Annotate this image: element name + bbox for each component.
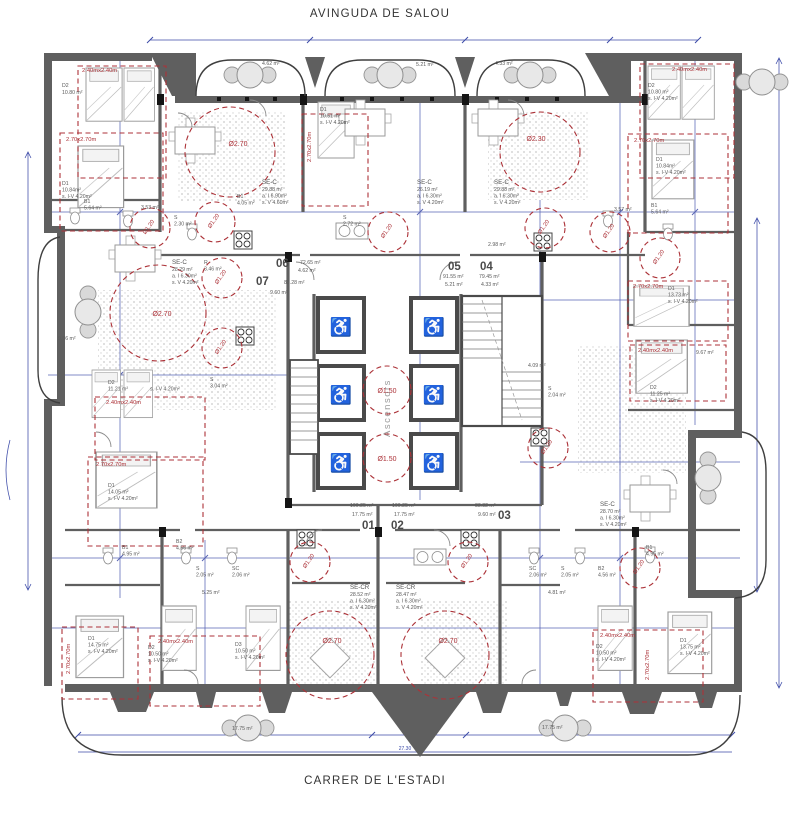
svg-text:D1: D1 — [680, 638, 687, 644]
svg-text:4.62 m²: 4.62 m² — [262, 61, 280, 67]
svg-text:s. V 4.20m²: s. V 4.20m² — [494, 200, 521, 206]
svg-text:28.52 m²: 28.52 m² — [350, 592, 371, 598]
svg-text:s. I-V 4.20m²: s. I-V 4.20m² — [680, 651, 710, 657]
svg-text:s. I-V 4.20m²: s. I-V 4.20m² — [108, 496, 138, 502]
svg-text:a. I 6.30m²: a. I 6.30m² — [494, 194, 519, 200]
svg-text:4.56 m²: 4.56 m² — [176, 546, 194, 552]
svg-text:4.05 m²: 4.05 m² — [237, 201, 255, 207]
staircase-west — [290, 360, 318, 454]
svg-text:SE-C: SE-C — [172, 259, 187, 266]
svg-text:S: S — [174, 215, 178, 221]
svg-text:s. V 4.20m²: s. V 4.20m² — [417, 200, 444, 206]
svg-text:D2: D2 — [648, 83, 655, 89]
clearance-label: 2.70x2.70m — [634, 138, 664, 144]
svg-text:28.47 m²: 28.47 m² — [396, 592, 417, 598]
unit-terrace-05: 5.21 m² — [445, 282, 463, 288]
svg-text:29.88 m²: 29.88 m² — [262, 187, 283, 193]
svg-text:B1: B1 — [84, 199, 90, 205]
svg-text:3.57 m²: 3.57 m² — [614, 207, 632, 213]
svg-text:10.84m²: 10.84m² — [62, 188, 81, 194]
svg-text:B2: B2 — [176, 539, 182, 545]
svg-text:5.21 m²: 5.21 m² — [416, 62, 434, 68]
svg-text:11.25 m²: 11.25 m² — [650, 392, 670, 398]
street-name-bottom: CARRER DE L'ESTADI — [304, 775, 446, 787]
svg-text:SE-C: SE-C — [262, 179, 277, 186]
unit-area-01: 100.25 m² — [350, 503, 374, 509]
svg-text:2.30 m²: 2.30 m² — [174, 222, 192, 228]
clearance-label: 2.70x2.70m — [66, 137, 96, 143]
svg-text:s. I-V 4.20m²: s. I-V 4.20m² — [650, 398, 680, 404]
wheelchair-icon: ♿ — [330, 384, 352, 405]
svg-text:D1: D1 — [320, 107, 327, 113]
unit-number-03: 03 — [498, 510, 511, 522]
clearance-label: Ø1.20 — [207, 213, 221, 229]
wheelchair-icon: ♿ — [423, 384, 445, 405]
unit-terrace-02: 17.75 m² — [394, 512, 415, 518]
clearance-label: Ø1.20 — [460, 553, 474, 569]
balcony-table — [736, 69, 788, 95]
svg-text:s. I-V 4.20m²: s. I-V 4.20m² — [320, 120, 350, 126]
svg-text:9.67 m²: 9.67 m² — [696, 350, 714, 356]
clearance-label: Ø1.20 — [302, 553, 316, 569]
svg-text:28.70 m²: 28.70 m² — [600, 509, 621, 515]
unit-area-07: 83.28 m² — [284, 280, 305, 286]
svg-text:D3: D3 — [235, 642, 242, 648]
svg-text:B1: B1 — [646, 545, 652, 551]
svg-text:D1: D1 — [88, 636, 95, 642]
svg-text:s. I-V 4.20m²: s. I-V 4.20m² — [648, 96, 678, 102]
svg-text:14.75 m²: 14.75 m² — [88, 643, 109, 649]
svg-text:S: S — [548, 386, 552, 392]
wheelchair-icon: ♿ — [330, 316, 352, 337]
svg-text:S: S — [210, 377, 214, 383]
svg-text:5.25 m²: 5.25 m² — [202, 590, 220, 596]
svg-text:SE-C: SE-C — [417, 179, 432, 186]
clearance-label: 2.70x2.70m — [633, 284, 663, 290]
unit-area-06: 72.65 m² — [300, 260, 321, 266]
svg-text:s. I-V 4.20m²: s. I-V 4.20m² — [668, 299, 698, 305]
unit-terrace-07: 9.60 m² — [270, 290, 288, 296]
svg-text:26.19 m²: 26.19 m² — [417, 187, 438, 193]
living-room-label: SE-C 26.19 m² a. I 6.30m² s. V 4.20m² — [417, 179, 444, 206]
svg-text:2.05 m²: 2.05 m² — [196, 573, 214, 579]
svg-text:5.64 m²: 5.64 m² — [84, 206, 102, 212]
svg-text:D1: D1 — [668, 286, 675, 292]
clearance-label: 2.70x2.70m — [645, 650, 651, 680]
clearance-label: 2.70x2.70m — [66, 644, 72, 674]
clearance-label: Ø1.20 — [602, 223, 616, 239]
svg-text:SC: SC — [232, 566, 239, 572]
svg-text:13.75 m²: 13.75 m² — [680, 645, 701, 651]
svg-text:4.81 m²: 4.81 m² — [548, 590, 566, 596]
svg-text:SE-CR: SE-CR — [350, 584, 370, 591]
unit-number-01: 01 — [362, 520, 375, 532]
svg-text:B1: B1 — [651, 203, 657, 209]
clearance-label: Ø1.20 — [380, 223, 394, 239]
svg-text:D2: D2 — [148, 645, 155, 651]
svg-text:4.95 m²: 4.95 m² — [646, 552, 664, 558]
svg-text:2.05 m²: 2.05 m² — [561, 573, 579, 579]
svg-text:4.09 m²: 4.09 m² — [528, 363, 546, 369]
clearance-label: 2.70x2.70m — [307, 132, 313, 162]
svg-text:s. I-V 4.20m²: s. I-V 4.20m² — [88, 649, 118, 655]
clearance-label: 2.40mx2.40m — [672, 67, 707, 73]
wheelchair-icon: ♿ — [330, 452, 352, 473]
unit-number-04: 04 — [480, 261, 493, 273]
clearance-label: Ø1.20 — [142, 219, 156, 235]
svg-text:2.72 m²: 2.72 m² — [343, 222, 361, 228]
svg-text:D1: D1 — [108, 483, 115, 489]
svg-text:D1: D1 — [62, 181, 69, 187]
svg-text:10.50 m²: 10.50 m² — [235, 649, 256, 655]
svg-text:SC: SC — [529, 566, 536, 572]
entrance-arrow-bottom — [372, 692, 468, 757]
svg-text:S: S — [343, 215, 347, 221]
svg-text:S: S — [561, 566, 565, 572]
unit-terrace-04: 4.33 m² — [481, 282, 499, 288]
svg-text:B1: B1 — [237, 194, 243, 200]
svg-text:D2: D2 — [650, 385, 657, 391]
unit-area-05: 91.55 m² — [443, 274, 464, 280]
svg-text:s. I-V 4.20m²: s. I-V 4.20m² — [235, 655, 265, 661]
staircase-east — [462, 296, 542, 426]
svg-text:a. I 6.30m²: a. I 6.30m² — [600, 516, 625, 522]
svg-text:2.04 m²: 2.04 m² — [548, 393, 566, 399]
svg-text:s. I-V 4.20m²: s. I-V 4.20m² — [150, 387, 180, 393]
clearance-label: 2.40mx2.40m — [600, 633, 635, 639]
svg-text:s. I-V 4.20m²: s. I-V 4.20m² — [656, 170, 686, 176]
svg-text:s. V 4.60m²: s. V 4.60m² — [262, 200, 289, 206]
balcony-table — [75, 286, 101, 338]
dim-total-width: 27.30 — [399, 746, 412, 752]
svg-text:B1: B1 — [122, 545, 128, 551]
unit-number-07: 07 — [256, 276, 269, 288]
balcony-table — [695, 452, 721, 504]
svg-text:SE-CR: SE-CR — [396, 584, 416, 591]
clearance-label: Ø2.70 — [322, 638, 341, 645]
svg-text:B2: B2 — [598, 566, 604, 572]
svg-text:11.21 m²: 11.21 m² — [108, 387, 128, 393]
clearance-label: Ø2.70 — [438, 638, 457, 645]
clearance-label: Ø1.50 — [377, 456, 396, 463]
living-room-label: SE-C 28.29 m² a. I 6.30m² s. V 4.20m² — [172, 259, 199, 286]
left-edge-arc — [6, 440, 10, 500]
floor-plan-drawing: 1.50 27.30 — [0, 0, 805, 814]
svg-text:13.73 m²: 13.73 m² — [668, 293, 689, 299]
clearance-label: 2.40mx2.40m — [638, 348, 673, 354]
svg-text:10.51 m²: 10.51 m² — [320, 114, 341, 120]
svg-text:a. I 6.30m²: a. I 6.30m² — [172, 274, 197, 280]
svg-text:D1: D1 — [656, 157, 663, 163]
svg-text:s. V 4.20m²: s. V 4.20m² — [350, 605, 377, 611]
svg-text:D2: D2 — [62, 83, 69, 89]
entrance-arrow-top-left — [305, 57, 325, 88]
svg-text:s. I-V 4.20m²: s. I-V 4.20m² — [596, 657, 626, 663]
clearance-label: 2.40mx2.40m — [106, 400, 141, 406]
unit-terrace-01: 17.75 m² — [352, 512, 373, 518]
clearance-label: 2.40mx2.40m — [82, 68, 117, 74]
svg-text:2.98 m²: 2.98 m² — [488, 242, 506, 248]
unit-area-03: 83.32 m² — [475, 503, 496, 509]
svg-text:14.05 m²: 14.05 m² — [108, 490, 129, 496]
entrance-arrow-top-right — [455, 57, 475, 88]
svg-text:17.75 m²: 17.75 m² — [542, 725, 563, 731]
clearance-label: Ø1.20 — [652, 249, 666, 265]
svg-text:2.06 m²: 2.06 m² — [232, 573, 250, 579]
svg-text:4.33 m²: 4.33 m² — [495, 61, 513, 67]
svg-text:10.84m²: 10.84m² — [656, 164, 675, 170]
svg-text:D2: D2 — [108, 380, 115, 386]
svg-text:3.46 m²: 3.46 m² — [204, 267, 222, 273]
svg-text:3.04 m²: 3.04 m² — [210, 384, 228, 390]
unit-area-02: 100.25 m² — [392, 503, 416, 509]
svg-text:29.88 m²: 29.88 m² — [494, 187, 515, 193]
clearance-label: Ø2.70 — [152, 311, 171, 318]
svg-text:SE-C: SE-C — [600, 501, 615, 508]
balcony-table — [364, 62, 416, 88]
unit-number-06: 06 — [276, 258, 289, 270]
svg-text:a. I 6.30m²: a. I 6.30m² — [350, 599, 375, 605]
svg-text:4.95 m²: 4.95 m² — [122, 552, 140, 558]
svg-text:s. I-V 4.20m²: s. I-V 4.20m² — [148, 658, 178, 664]
svg-text:a. I 6.30m²: a. I 6.30m² — [396, 599, 421, 605]
unit-number-05: 05 — [448, 261, 461, 273]
clearance-label: 2.70x2.70m — [96, 462, 126, 468]
svg-text:5.64 m²: 5.64 m² — [651, 210, 669, 216]
clearance-label: Ø1.50 — [377, 388, 396, 395]
svg-text:4.56 m²: 4.56 m² — [598, 573, 616, 579]
svg-text:s. V 4.20m²: s. V 4.20m² — [172, 280, 199, 286]
unit-area-04: 79.45 m² — [479, 274, 500, 280]
clearance-label: Ø2.70 — [228, 141, 247, 148]
svg-text:10.50 m²: 10.50 m² — [148, 652, 169, 658]
unit-terrace-06: 4.62 m² — [298, 268, 316, 274]
svg-text:3.53 m²: 3.53 m² — [141, 205, 159, 211]
living-room-label: SE-C 28.70 m² a. I 6.30m² s. V 4.20m² — [600, 501, 627, 528]
svg-text:10.80 m²: 10.80 m² — [648, 90, 669, 96]
wheelchair-icon: ♿ — [423, 452, 445, 473]
svg-text:2.06 m²: 2.06 m² — [529, 573, 547, 579]
unit-number-02: 02 — [391, 520, 404, 532]
svg-text:S: S — [196, 566, 200, 572]
street-name-top: AVINGUDA DE SALOU — [310, 8, 450, 20]
wheelchair-icon: ♿ — [423, 316, 445, 337]
svg-text:R: R — [204, 260, 208, 266]
svg-text:10.50 m²: 10.50 m² — [596, 651, 617, 657]
living-room-label: SE-CR 28.52 m² a. I 6.30m² s. V 4.20m² — [350, 584, 377, 611]
svg-text:SE-C: SE-C — [494, 179, 509, 186]
svg-text:28.29 m²: 28.29 m² — [172, 267, 193, 273]
svg-text:s. V 4.20m²: s. V 4.20m² — [600, 522, 627, 528]
clearance-label: 2.40mx2.40m — [158, 639, 193, 645]
svg-text:10.80 m²: 10.80 m² — [62, 90, 83, 96]
svg-text:9.66 m²: 9.66 m² — [58, 336, 76, 342]
svg-text:s. V 4.20m²: s. V 4.20m² — [396, 605, 423, 611]
clearance-label: Ø2.30 — [526, 136, 545, 143]
svg-text:a. I 6.90m²: a. I 6.90m² — [262, 194, 287, 200]
svg-text:D2: D2 — [596, 644, 603, 650]
unit-terrace-03: 9.60 m² — [478, 512, 496, 518]
living-room-label: SE-CR 28.47 m² a. I 6.30m² s. V 4.20m² — [396, 584, 423, 611]
svg-text:17.75 m²: 17.75 m² — [232, 726, 253, 732]
svg-text:a. I 6.30m²: a. I 6.30m² — [417, 194, 442, 200]
